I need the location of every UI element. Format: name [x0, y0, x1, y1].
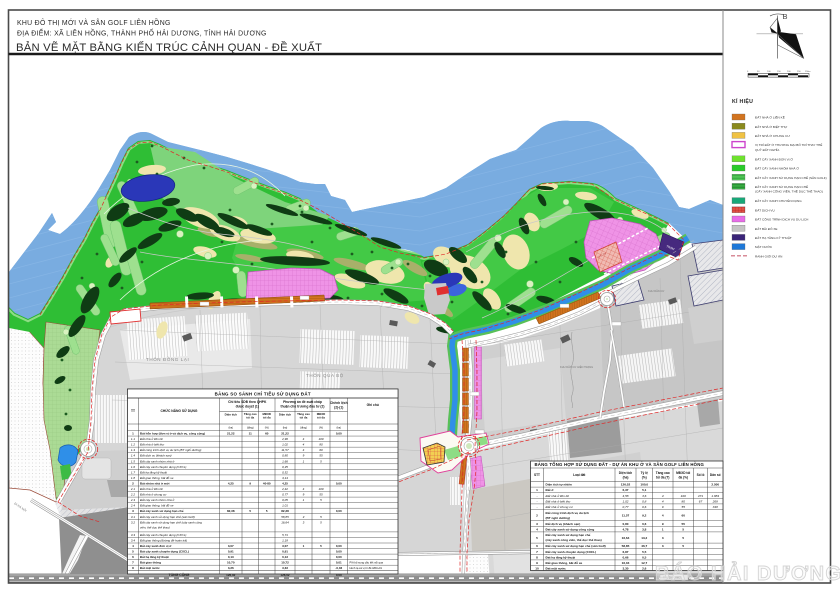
svg-text:4: 4 — [536, 527, 538, 531]
svg-text:-0,03: -0,03 — [335, 566, 342, 570]
svg-text:-: - — [536, 494, 537, 498]
svg-text:5,1: 5,1 — [642, 488, 647, 492]
svg-text:12,7: 12,7 — [641, 561, 647, 565]
svg-text:4,78: 4,78 — [622, 527, 628, 531]
svg-text:1.8: 1.8 — [131, 476, 136, 480]
svg-text:1: 1 — [662, 527, 664, 531]
svg-text:Đất mặt nước: Đất mặt nước — [140, 566, 160, 570]
svg-text:Đất cây xanh sử dụng hạn chế (: Đất cây xanh sử dụng hạn chế (sân Golf) — [546, 544, 606, 548]
svg-text:(ha): (ha) — [228, 425, 233, 429]
svg-text:TỔNG CỘNG: TỔNG CỘNG — [169, 572, 190, 577]
svg-text:0,80: 0,80 — [622, 522, 628, 526]
svg-text:(ha): (ha) — [336, 425, 341, 429]
svg-text:Đất cây xanh chuyên dụng (CXCL: Đất cây xanh chuyên dụng (CXCL) — [140, 550, 189, 554]
svg-text:3,33: 3,33 — [282, 566, 288, 570]
svg-text:40-80: 40-80 — [263, 481, 271, 485]
svg-text:60: 60 — [319, 448, 323, 452]
svg-text:0,00: 0,00 — [336, 432, 342, 436]
svg-text:RANH GIỚI DỰ ÁN: RANH GIỚI DỰ ÁN — [755, 253, 782, 258]
svg-text:Diện tích: Diện tích — [279, 413, 291, 417]
svg-text:ĐẤT CÂY XANH ĐƠN VỊ Ở: ĐẤT CÂY XANH ĐƠN VỊ Ở — [755, 156, 793, 161]
svg-text:0,91: 0,91 — [282, 550, 288, 554]
svg-text:ĐẤT CÂY XANH CHUYÊN DỤNG: ĐẤT CÂY XANH CHUYÊN DỤNG — [755, 198, 802, 203]
svg-text:0,00: 0,00 — [336, 573, 342, 577]
svg-text:0,13: 0,13 — [282, 555, 288, 559]
svg-text:Chênh lệch: Chênh lệch — [330, 401, 348, 405]
svg-text:(2)-(1): (2)-(1) — [334, 406, 343, 410]
svg-text:Đất nhà ở liền kề: Đất nhà ở liền kề — [140, 437, 163, 441]
svg-text:250m: 250m — [805, 71, 811, 73]
svg-text:80: 80 — [319, 443, 323, 447]
svg-text:10: 10 — [535, 567, 539, 571]
svg-text:55: 55 — [682, 522, 686, 526]
svg-text:1.3: 1.3 — [131, 448, 136, 452]
svg-text:2.1: 2.1 — [130, 487, 136, 491]
svg-text:9: 9 — [662, 522, 664, 526]
svg-text:KHU ĐÔ THỊ MỚI VÀ SÂN GOLF LIÊ: KHU ĐÔ THỊ MỚI VÀ SÂN GOLF LIÊN HỒNG — [17, 17, 171, 27]
svg-text:Đất nhà ở chung cư: Đất nhà ở chung cư — [140, 493, 167, 497]
svg-text:100,0: 100,0 — [640, 483, 648, 487]
svg-text:0,35: 0,35 — [282, 465, 288, 469]
svg-text:150: 150 — [777, 71, 781, 73]
svg-text:ĐẤT HẠ TẦNG KỸ THUẬT: ĐẤT HẠ TẦNG KỸ THUẬT — [755, 235, 792, 240]
svg-text:2: 2 — [536, 513, 538, 517]
svg-text:0,00: 0,00 — [336, 555, 342, 559]
svg-text:100: 100 — [681, 494, 686, 498]
svg-text:-: - — [536, 505, 537, 509]
svg-text:BẢN VẼ MẶT BẰNG KIẾN TRÚC CẢNH: BẢN VẼ MẶT BẰNG KIẾN TRÚC CẢNH QUAN - ĐỀ… — [16, 41, 322, 54]
svg-text:50: 50 — [757, 71, 760, 73]
svg-text:3,30: 3,30 — [622, 567, 628, 571]
svg-text:0,8: 0,8 — [642, 499, 647, 503]
svg-text:Đất công trình dịch vụ du lịch: Đất công trình dịch vụ du lịch (BT nghỉ … — [140, 448, 201, 452]
svg-text:Diện tích: Diện tích — [619, 471, 633, 475]
svg-text:(cây xanh công viên, thể dục t: (cây xanh công viên, thể dục thể thao) — [546, 538, 602, 542]
svg-text:3: 3 — [662, 544, 664, 548]
svg-text:6,37: 6,37 — [622, 488, 628, 492]
svg-text:0,00: 0,00 — [336, 509, 342, 513]
svg-text:MĐXD tối: MĐXD tối — [676, 471, 690, 475]
svg-text:Đất dịch vụ (khách sạn): Đất dịch vụ (khách sạn) — [546, 522, 581, 526]
svg-text:(ha): (ha) — [623, 476, 629, 480]
svg-text:2,96: 2,96 — [281, 437, 288, 441]
svg-text:5: 5 — [536, 536, 538, 540]
svg-text:Tỷ lệ: Tỷ lệ — [641, 471, 648, 475]
svg-text:thuận chủ trương đầu tư (2): thuận chủ trương đầu tư (2) — [281, 405, 325, 409]
svg-text:1.4: 1.4 — [131, 454, 136, 458]
svg-text:Đất cây xanh chuyên dụng (CXCL: Đất cây xanh chuyên dụng (CXCL) — [140, 465, 186, 469]
svg-text:Đất nhà ở biệt thự: Đất nhà ở biệt thự — [140, 443, 165, 447]
svg-text:(tầng): (tầng) — [247, 425, 254, 429]
svg-text:10,72: 10,72 — [281, 561, 289, 565]
svg-text:Đất cây xanh đơn vị ở: Đất cây xanh đơn vị ở — [140, 544, 172, 548]
svg-text:(%): (%) — [265, 425, 269, 429]
svg-text:Đất giao thông, bãi đỗ xe: Đất giao thông, bãi đỗ xe — [140, 475, 174, 480]
svg-text:BẢNG SO SÁNH CHỈ TIÊU SỬ DỤNG: BẢNG SO SÁNH CHỈ TIÊU SỬ DỤNG ĐẤT — [215, 391, 311, 396]
svg-text:80: 80 — [682, 499, 686, 503]
svg-text:1.884: 1.884 — [711, 494, 719, 498]
svg-text:Diện tích: Diện tích — [225, 413, 237, 417]
svg-text:0,00: 0,00 — [336, 550, 342, 554]
svg-text:P/A bổ sung cầu kết nối qua: P/A bổ sung cầu kết nối qua — [350, 561, 384, 565]
svg-text:3.3: 3.3 — [131, 533, 136, 537]
svg-text:58,85: 58,85 — [281, 515, 289, 519]
svg-text:9: 9 — [662, 505, 664, 509]
svg-text:9,2: 9,2 — [642, 513, 647, 517]
svg-text:5: 5 — [682, 544, 684, 548]
svg-text:0,05: 0,05 — [282, 498, 288, 502]
svg-text:0,52: 0,52 — [282, 470, 288, 474]
svg-text:8: 8 — [536, 555, 538, 559]
svg-text:1,01: 1,01 — [282, 504, 288, 508]
svg-text:Đất hạ tầng kỹ thuật: Đất hạ tầng kỹ thuật — [140, 555, 169, 559]
svg-text:Đất hạ tầng kỹ thuật: Đất hạ tầng kỹ thuật — [140, 470, 167, 474]
svg-text:ĐẤT CÂY XANH SỬ DỤNG HẠN CHẾ (: ĐẤT CÂY XANH SỬ DỤNG HẠN CHẾ (SÂN GOLF) — [755, 175, 827, 180]
svg-text:10,70: 10,70 — [227, 561, 235, 565]
svg-text:5,5: 5,5 — [642, 550, 647, 554]
svg-text:tối đa: tối đa — [317, 415, 325, 419]
svg-text:0,6: 0,6 — [642, 522, 647, 526]
svg-text:Đất giao thông, bãi đỗ xe: Đất giao thông, bãi đỗ xe — [546, 561, 583, 565]
svg-text:Chỉ tiêu SDĐ theo QHPK: Chỉ tiêu SDĐ theo QHPK — [228, 400, 267, 404]
svg-text:Đất nhà ở liền kề: Đất nhà ở liền kề — [140, 487, 163, 491]
svg-text:ĐẤT CÔNG TRÌNH DỊCH VỤ DU LỊCH: ĐẤT CÔNG TRÌNH DỊCH VỤ DU LỊCH — [755, 217, 808, 222]
svg-text:3: 3 — [662, 536, 664, 540]
svg-text:Đất cây xanh sử dụng hạn chế (: Đất cây xanh sử dụng hạn chế (cây xanh c… — [140, 520, 202, 524]
svg-text:11,57: 11,57 — [622, 513, 630, 517]
svg-text:Dân số: Dân số — [710, 473, 721, 477]
svg-text:ĐẤT DỊCH VỤ: ĐẤT DỊCH VỤ — [755, 208, 775, 212]
svg-text:4: 4 — [662, 513, 664, 517]
svg-text:13,2: 13,2 — [641, 536, 647, 540]
svg-text:Đất nhóm nhà ở mới: Đất nhóm nhà ở mới — [140, 481, 170, 485]
svg-text:2.500: 2.500 — [711, 483, 719, 487]
svg-text:ĐẤT NHÀ Ở CHUNG CƯ: ĐẤT NHÀ Ở CHUNG CƯ — [755, 133, 790, 138]
svg-text:58,85: 58,85 — [622, 544, 630, 548]
svg-text:268: 268 — [712, 499, 718, 503]
svg-text:Đất dịch vụ (khách sạn): Đất dịch vụ (khách sạn) — [140, 454, 172, 458]
svg-text:2.2: 2.2 — [130, 493, 136, 497]
svg-text:3.2: 3.2 — [131, 520, 136, 524]
svg-text:55: 55 — [319, 454, 323, 458]
svg-text:250: 250 — [797, 71, 801, 73]
svg-text:Đất cây xanh nhóm nhà ở: Đất cây xanh nhóm nhà ở — [140, 459, 176, 463]
svg-text:Đất giao thông (đường đê hoàn: Đất giao thông (đường đê hoàn trả) — [140, 538, 187, 542]
svg-text:1,02: 1,02 — [282, 443, 288, 447]
svg-text:3.4: 3.4 — [131, 538, 136, 542]
svg-text:Đất cây xanh sử dụng hạn chế (: Đất cây xanh sử dụng hạn chế (sân Golf) — [140, 515, 195, 519]
svg-text:2,6: 2,6 — [642, 567, 647, 571]
svg-text:1: 1 — [536, 488, 538, 492]
svg-text:tối đa (T): tối đa (T) — [656, 476, 669, 480]
svg-text:2.4: 2.4 — [130, 504, 136, 508]
svg-text:Đất giao thông, bãi đỗ xe: Đất giao thông, bãi đỗ xe — [140, 503, 174, 508]
svg-text:0,91: 0,91 — [228, 550, 234, 554]
svg-text:16,04: 16,04 — [622, 561, 630, 565]
svg-text:1,18: 1,18 — [282, 538, 288, 542]
svg-text:67: 67 — [699, 499, 703, 503]
svg-text:Đất mặt nước: Đất mặt nước — [546, 567, 567, 571]
svg-text:6,87: 6,87 — [622, 550, 628, 554]
svg-text:2,42: 2,42 — [281, 487, 288, 491]
svg-text:Đất cây xanh sử dụng hạn chế: Đất cây xanh sử dụng hạn chế — [140, 509, 184, 513]
svg-text:11: 11 — [249, 432, 253, 436]
svg-text:82,38: 82,38 — [281, 509, 289, 513]
svg-text:Đất nhà ở liền kề: Đất nhà ở liền kề — [546, 494, 570, 498]
svg-text:Tầng cao: Tầng cao — [656, 471, 670, 475]
svg-text:1.5: 1.5 — [131, 459, 136, 463]
svg-text:2.3: 2.3 — [130, 498, 136, 502]
svg-text:ĐẤT CÂY XANH SỬ DỤNG HẠN CHẾ: ĐẤT CÂY XANH SỬ DỤNG HẠN CHẾ — [755, 184, 808, 189]
svg-text:MẶT NƯỚC: MẶT NƯỚC — [755, 244, 773, 249]
svg-text:21,22: 21,22 — [227, 432, 235, 436]
svg-text:4,25: 4,25 — [282, 481, 288, 485]
svg-text:5,71: 5,71 — [282, 533, 288, 537]
svg-text:kênh tạ xá vị trí đê HB3+01: kênh tạ xá vị trí đê HB3+01 — [350, 566, 383, 570]
svg-text:3,26: 3,26 — [228, 566, 234, 570]
svg-text:1.7: 1.7 — [131, 470, 136, 474]
svg-text:Số lô: Số lô — [697, 473, 705, 477]
svg-text:0,80: 0,80 — [282, 454, 288, 458]
svg-text:16,64: 16,64 — [622, 536, 630, 540]
svg-text:9: 9 — [536, 561, 538, 565]
svg-text:-: - — [536, 499, 537, 503]
svg-text:0: 0 — [747, 71, 749, 73]
svg-text:55: 55 — [319, 493, 323, 497]
svg-text:Loại đất: Loại đất — [573, 473, 586, 477]
svg-text:Đất công trình dịch vụ du lịch: Đất công trình dịch vụ du lịch — [546, 511, 590, 515]
svg-text:Đất cây xanh chuyên dụng (CXCL: Đất cây xanh chuyên dụng (CXCL) — [140, 533, 186, 537]
svg-text:126,02: 126,02 — [226, 573, 236, 577]
svg-text:3,07: 3,07 — [228, 544, 234, 548]
svg-text:đa (%): đa (%) — [678, 476, 688, 480]
svg-text:4,58: 4,58 — [622, 494, 628, 498]
svg-text:Đất cây xanh sử dụng công cộng: Đất cây xanh sử dụng công cộng — [546, 527, 595, 531]
svg-text:Đất cây xanh sử dụng hạn chế: Đất cây xanh sử dụng hạn chế — [546, 533, 591, 537]
svg-text:(ha): (ha) — [283, 425, 288, 429]
svg-text:4: 4 — [662, 494, 664, 498]
svg-text:BẢNG TỔNG HỢP SỬ DỤNG ĐẤT - DỰ: BẢNG TỔNG HỢP SỬ DỤNG ĐẤT - DỰ ÁN KHU Ở … — [535, 462, 705, 467]
svg-text:471: 471 — [698, 494, 703, 498]
svg-text:ĐẤT CÂY XANH NHÓM NHÀ Ở: ĐẤT CÂY XANH NHÓM NHÀ Ở — [755, 166, 799, 171]
svg-text:21,22: 21,22 — [281, 432, 289, 436]
svg-text:Đất cây xanh chuyên dụng (CXCL: Đất cây xanh chuyên dụng (CXCL) — [546, 550, 597, 554]
svg-text:QUỸ ĐẤT NGHĨA: QUỸ ĐẤT NGHĨA — [755, 147, 780, 152]
svg-text:ĐỊA ĐIỂM: XÃ LIÊN HỒNG, THÀNH: ĐỊA ĐIỂM: XÃ LIÊN HỒNG, THÀNH PHỐ HẢI DƯ… — [17, 28, 267, 38]
svg-text:7: 7 — [536, 550, 538, 554]
svg-text:55: 55 — [682, 505, 686, 509]
svg-text:0,77: 0,77 — [622, 505, 628, 509]
svg-text:(tầng): (tầng) — [300, 425, 307, 429]
svg-text:0,6: 0,6 — [642, 505, 647, 509]
svg-text:1.1: 1.1 — [131, 437, 136, 441]
svg-text:60: 60 — [265, 432, 269, 436]
svg-text:THÔN ĐỒNG LẠI: THÔN ĐỒNG LẠI — [146, 356, 189, 362]
svg-text:0,01: 0,01 — [336, 561, 342, 565]
svg-text:3,14: 3,14 — [282, 476, 288, 480]
svg-text:1.6: 1.6 — [131, 465, 136, 469]
svg-text:0,13: 0,13 — [228, 555, 234, 559]
svg-text:1,66: 1,66 — [282, 459, 288, 463]
svg-text:0,00: 0,00 — [336, 544, 342, 548]
svg-text:6: 6 — [536, 544, 538, 548]
svg-text:CHỨC NĂNG SỬ DỤNG: CHỨC NĂNG SỬ DỤNG — [161, 408, 198, 413]
svg-text:46,7: 46,7 — [641, 544, 647, 548]
svg-text:3,8: 3,8 — [642, 527, 647, 531]
svg-text:ĐẤT BÃI ĐỖ XE: ĐẤT BÃI ĐỖ XE — [755, 226, 777, 231]
svg-text:4: 4 — [662, 499, 664, 503]
svg-text:Đất nhà ở biệt thự: Đất nhà ở biệt thự — [546, 499, 572, 503]
svg-text:16,64: 16,64 — [281, 520, 289, 524]
svg-text:Đất nhà ở chung cư: Đất nhà ở chung cư — [546, 505, 574, 509]
svg-text:0,5: 0,5 — [642, 555, 647, 559]
svg-text:tối đa: tối đa — [300, 415, 308, 419]
svg-text:0,66: 0,66 — [622, 555, 628, 559]
svg-text:(CÂY XANH CÔNG VIÊN, THỂ DỤC T: (CÂY XANH CÔNG VIÊN, THỂ DỤC THỂ THAO) — [755, 189, 823, 194]
svg-text:được duyệt (1): được duyệt (1) — [236, 405, 259, 409]
svg-text:Đất hỗn hợp (đơn vị ở và dịch: Đất hỗn hợp (đơn vị ở và dịch vụ, công c… — [140, 432, 205, 436]
svg-text:Đất hạ tầng kỹ thuật: Đất hạ tầng kỹ thuật — [546, 555, 576, 559]
svg-text:KÍ HIỆU: KÍ HIỆU — [732, 97, 753, 105]
svg-text:(%): (%) — [319, 425, 323, 429]
svg-text:126,02: 126,02 — [621, 483, 631, 487]
svg-text:ĐẤT NHÀ Ở BIỆT THỰ: ĐẤT NHÀ Ở BIỆT THỰ — [755, 124, 788, 129]
svg-text:60: 60 — [682, 513, 686, 517]
svg-text:100: 100 — [318, 487, 323, 491]
svg-text:348: 348 — [713, 505, 718, 509]
svg-text:Đất ở: Đất ở — [546, 488, 555, 492]
svg-text:5: 5 — [682, 536, 684, 540]
svg-text:100: 100 — [767, 71, 771, 73]
svg-text:Diện tích tự nhiên: Diện tích tự nhiên — [546, 483, 572, 487]
svg-text:126,02: 126,02 — [280, 573, 290, 577]
svg-text:viên, thể dục thể thao): viên, thể dục thể thao) — [140, 525, 170, 529]
svg-text:BÁO HẢI DƯƠNG: BÁO HẢI DƯƠNG — [655, 562, 840, 585]
svg-text:1.2: 1.2 — [131, 443, 136, 447]
svg-text:B: B — [783, 12, 788, 21]
svg-text:tối đa: tối đa — [246, 415, 254, 419]
svg-text:(BT nghỉ dưỡng): (BT nghỉ dưỡng) — [546, 516, 571, 520]
svg-text:100: 100 — [318, 437, 323, 441]
svg-text:Đất giao thông: Đất giao thông — [140, 561, 161, 565]
svg-text:THÔN QUA BỘ: THÔN QUA BỘ — [306, 372, 344, 378]
svg-text:3,6: 3,6 — [642, 494, 647, 498]
svg-text:(%): (%) — [642, 476, 647, 480]
svg-text:82,38: 82,38 — [227, 509, 235, 513]
svg-text:0,00: 0,00 — [336, 481, 342, 485]
svg-text:Ghi chú: Ghi chú — [367, 403, 379, 407]
svg-text:3: 3 — [536, 522, 538, 526]
svg-text:11,57: 11,57 — [281, 448, 289, 452]
svg-text:VỊ TRÍ ĐẤT Ở THƯƠNG MẠI BỐ TRÍ: VỊ TRÍ ĐẤT Ở THƯƠNG MẠI BỐ TRÍ THAY THẾ — [755, 142, 822, 147]
svg-text:4,25: 4,25 — [228, 481, 234, 485]
svg-text:5: 5 — [682, 527, 684, 531]
svg-text:STT: STT — [534, 473, 540, 477]
svg-text:1,02: 1,02 — [622, 499, 628, 503]
svg-text:Đất cây xanh nhóm nhà ở: Đất cây xanh nhóm nhà ở — [140, 498, 176, 502]
svg-text:3,07: 3,07 — [282, 544, 288, 548]
svg-text:200: 200 — [787, 71, 791, 73]
svg-text:ĐẤT NHÀ Ở LIỀN KỀ: ĐẤT NHÀ Ở LIỀN KỀ — [755, 115, 785, 120]
svg-text:0,77: 0,77 — [282, 493, 288, 497]
svg-text:TT: TT — [131, 409, 135, 413]
svg-text:tối đa: tối đa — [263, 415, 271, 419]
svg-text:Phương án đề xuất chấp: Phương án đề xuất chấp — [283, 400, 322, 404]
svg-text:3.1: 3.1 — [131, 515, 136, 519]
